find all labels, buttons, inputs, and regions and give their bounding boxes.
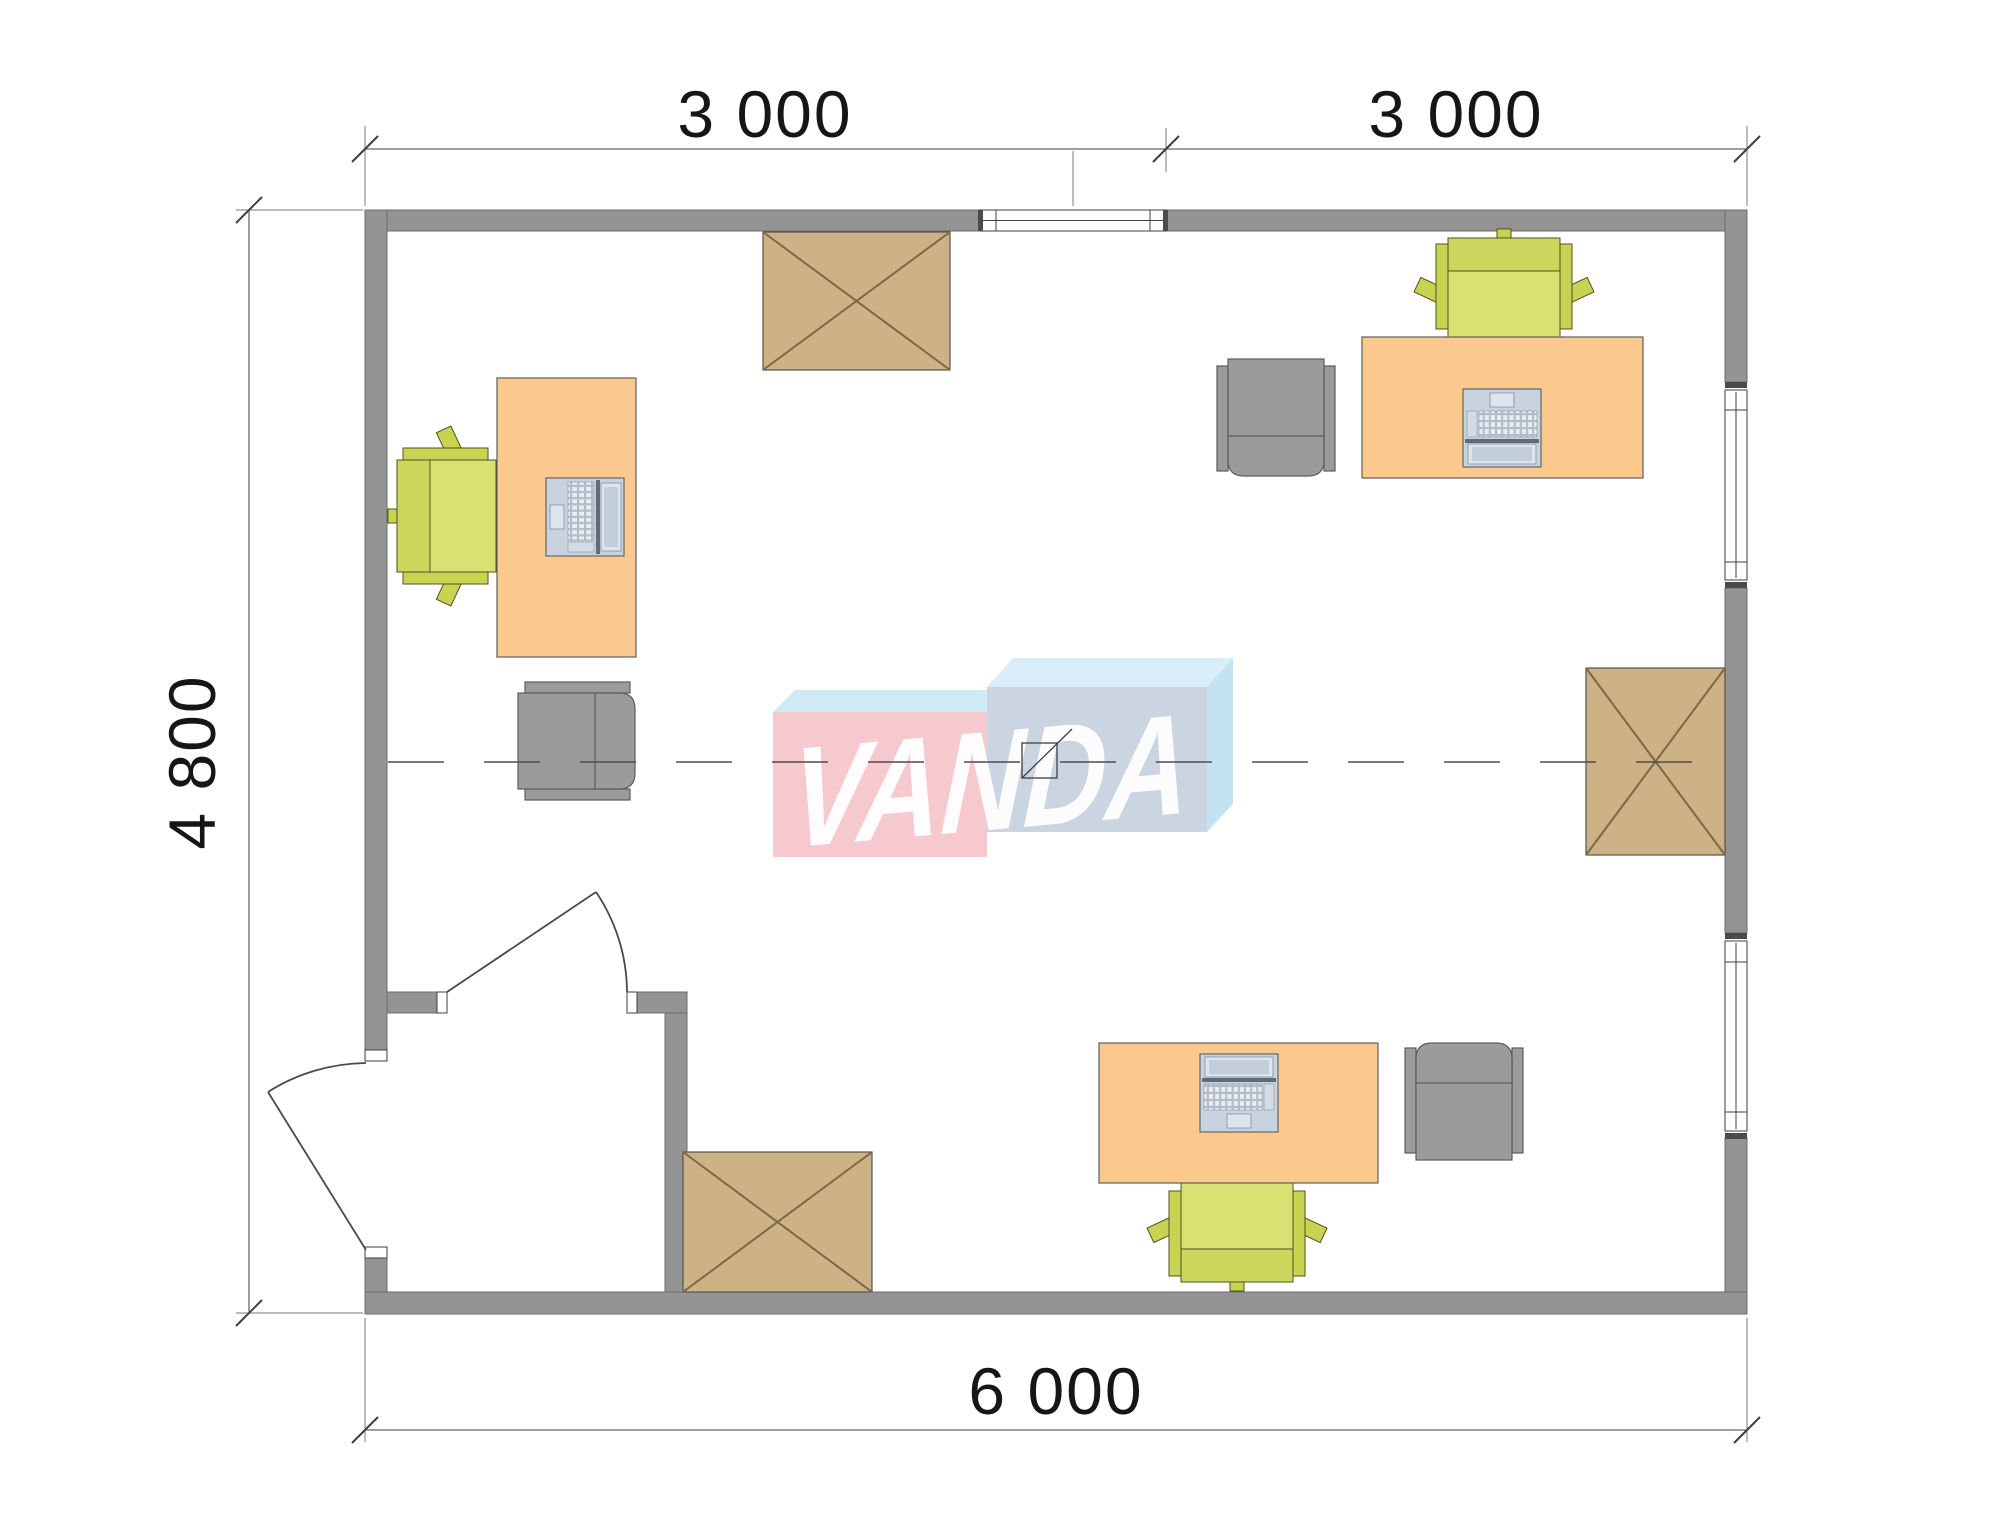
partition-right-piece [637,992,687,1013]
vestibule-door [447,892,627,992]
right-wall-window-upper [1725,382,1747,588]
guest-chair-gray-bottom [1405,1043,1523,1160]
top-wall-left-segment [365,210,980,231]
dim-label-left: 4 800 [155,674,229,849]
floor-plan-canvas: VANDA [0,0,2000,1520]
laptop-icon-top-right [1463,389,1541,467]
guest-chair-gray-top-right [1217,359,1335,476]
partition-door-jamb-right [627,992,637,1013]
right-wall-seg1 [1725,210,1747,382]
dim-label-top-right: 3 000 [1368,77,1543,151]
workstation-top-right [1217,229,1643,478]
left-wall-lower [365,1258,387,1292]
workstation-bottom-center [1099,1043,1523,1291]
guest-chair-gray-top-left [518,682,635,800]
right-wall-seg3 [1725,1138,1747,1292]
storage-box-bottom [683,1152,872,1292]
task-chair-green-top-right [1414,229,1594,337]
workstation-top-left [388,378,636,800]
vestibule-partition [387,992,687,1292]
task-chair-green-bottom [1147,1183,1327,1291]
partition-door-jamb-left [437,992,447,1013]
dim-label-top-left: 3 000 [677,77,852,151]
logo-blue-box-top [987,658,1233,687]
entry-door [268,1063,366,1250]
vanda-watermark-logo: VANDA [773,658,1233,879]
bottom-wall [365,1292,1747,1314]
laptop-icon-bottom [1200,1054,1278,1132]
partition-left-piece [387,992,437,1013]
entry-door-jamb-top [365,1050,387,1061]
right-wall-window-lower [1725,933,1747,1139]
laptop-icon-top-left [546,478,624,556]
task-chair-green-top-left [388,426,496,606]
logo-blue-box-side [1207,658,1233,832]
dim-label-bottom: 6 000 [968,1354,1143,1428]
left-wall-upper [365,210,387,1050]
right-wall-seg2 [1725,588,1747,933]
entry-door-jamb-bottom [365,1247,387,1258]
top-wall-right-segment [1166,210,1747,231]
storage-box-top [763,232,950,370]
top-wall-window [978,210,1168,231]
